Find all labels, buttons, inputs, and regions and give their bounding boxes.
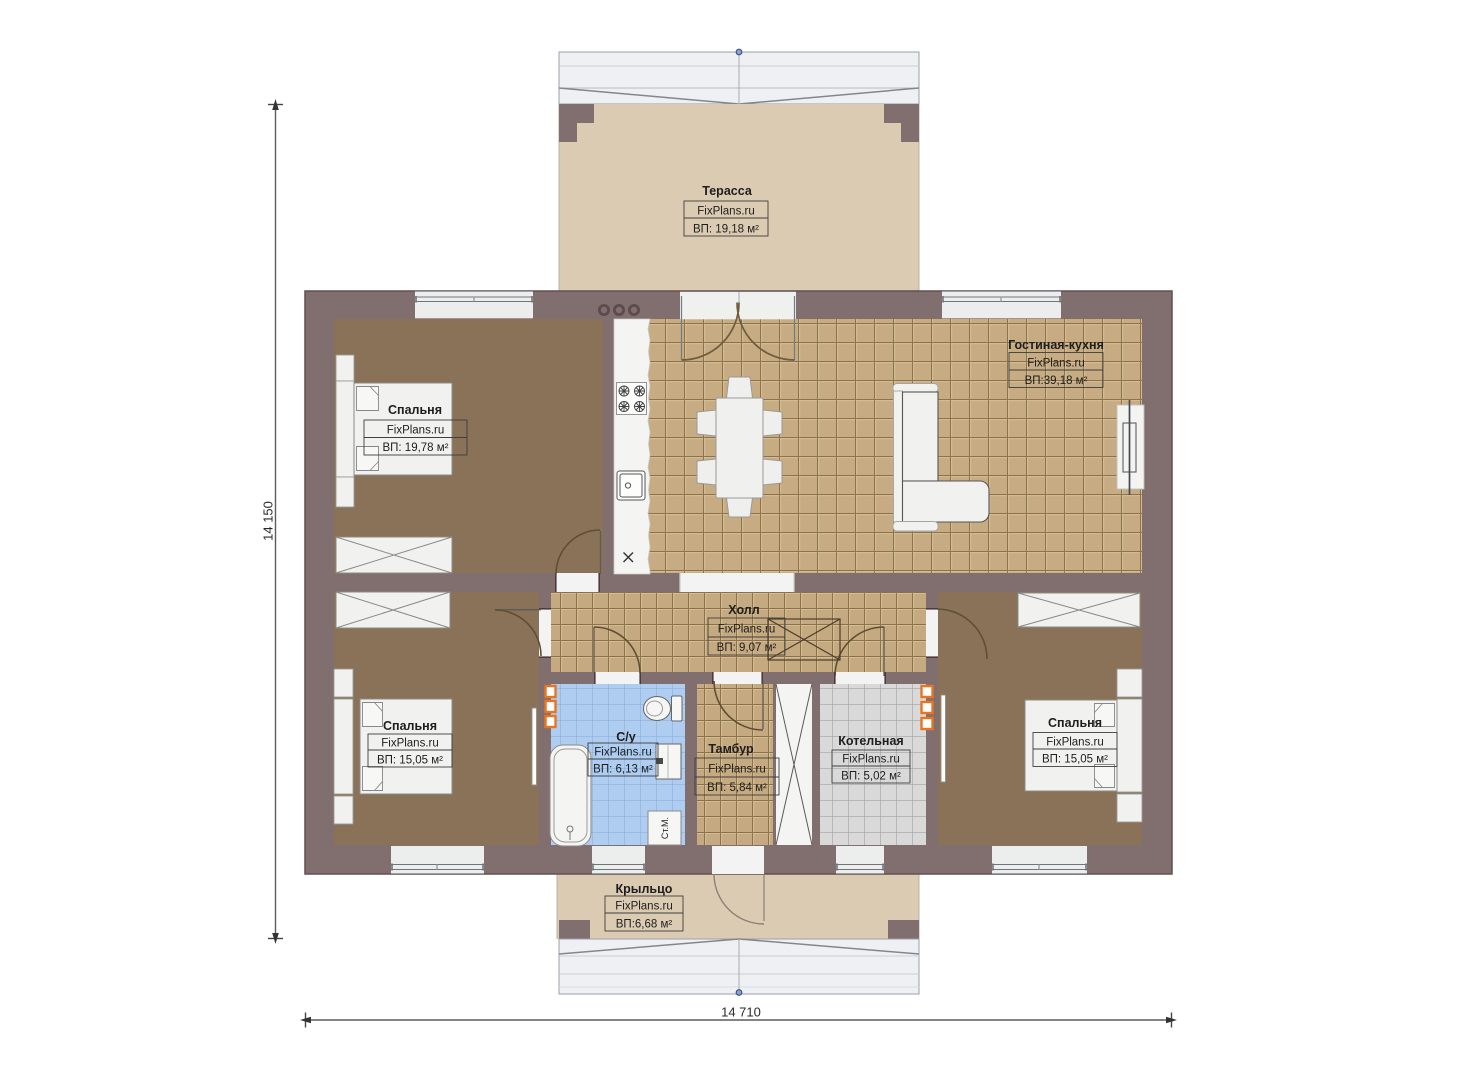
svg-text:FixPlans.ru: FixPlans.ru: [615, 901, 673, 913]
svg-text:Котельная: Котельная: [838, 734, 903, 748]
svg-text:Спальня: Спальня: [388, 403, 442, 417]
svg-text:FixPlans.ru: FixPlans.ru: [697, 206, 755, 218]
svg-text:FixPlans.ru: FixPlans.ru: [1046, 737, 1104, 749]
svg-text:Гостиная-кухня: Гостиная-кухня: [1008, 338, 1104, 352]
svg-text:FixPlans.ru: FixPlans.ru: [594, 747, 652, 759]
svg-text:Спальня: Спальня: [383, 719, 437, 733]
svg-text:FixPlans.ru: FixPlans.ru: [718, 624, 776, 636]
svg-text:Тамбур: Тамбур: [708, 742, 754, 756]
svg-text:ВП: 15,05 м²: ВП: 15,05 м²: [377, 755, 443, 767]
svg-text:ВП: 5,84 м²: ВП: 5,84 м²: [707, 782, 767, 794]
svg-text:ВП: 5,02 м²: ВП: 5,02 м²: [841, 771, 901, 783]
svg-text:FixPlans.ru: FixPlans.ru: [381, 738, 439, 750]
svg-text:14 150: 14 150: [261, 501, 276, 541]
svg-text:FixPlans.ru: FixPlans.ru: [1027, 358, 1085, 370]
svg-text:14 710: 14 710: [721, 1005, 761, 1020]
svg-text:ВП: 19,18 м²: ВП: 19,18 м²: [693, 224, 759, 236]
svg-text:Крыльцо: Крыльцо: [616, 882, 673, 896]
svg-text:ВП: 15,05 м²: ВП: 15,05 м²: [1042, 754, 1108, 766]
svg-text:Холл: Холл: [728, 603, 759, 617]
svg-text:FixPlans.ru: FixPlans.ru: [708, 764, 766, 776]
svg-text:Спальня: Спальня: [1048, 716, 1102, 730]
svg-text:ВП:6,68 м²: ВП:6,68 м²: [616, 919, 673, 931]
svg-text:ВП:39,18 м²: ВП:39,18 м²: [1025, 375, 1088, 387]
svg-text:ВП: 19,78 м²: ВП: 19,78 м²: [382, 442, 448, 454]
svg-text:FixPlans.ru: FixPlans.ru: [842, 754, 900, 766]
svg-text:С/у: С/у: [616, 730, 636, 744]
svg-text:Терасса: Терасса: [702, 184, 753, 198]
svg-text:ВП: 6,13 м²: ВП: 6,13 м²: [593, 764, 653, 776]
svg-text:Ст.М.: Ст.М.: [660, 817, 670, 839]
svg-text:FixPlans.ru: FixPlans.ru: [387, 425, 445, 437]
